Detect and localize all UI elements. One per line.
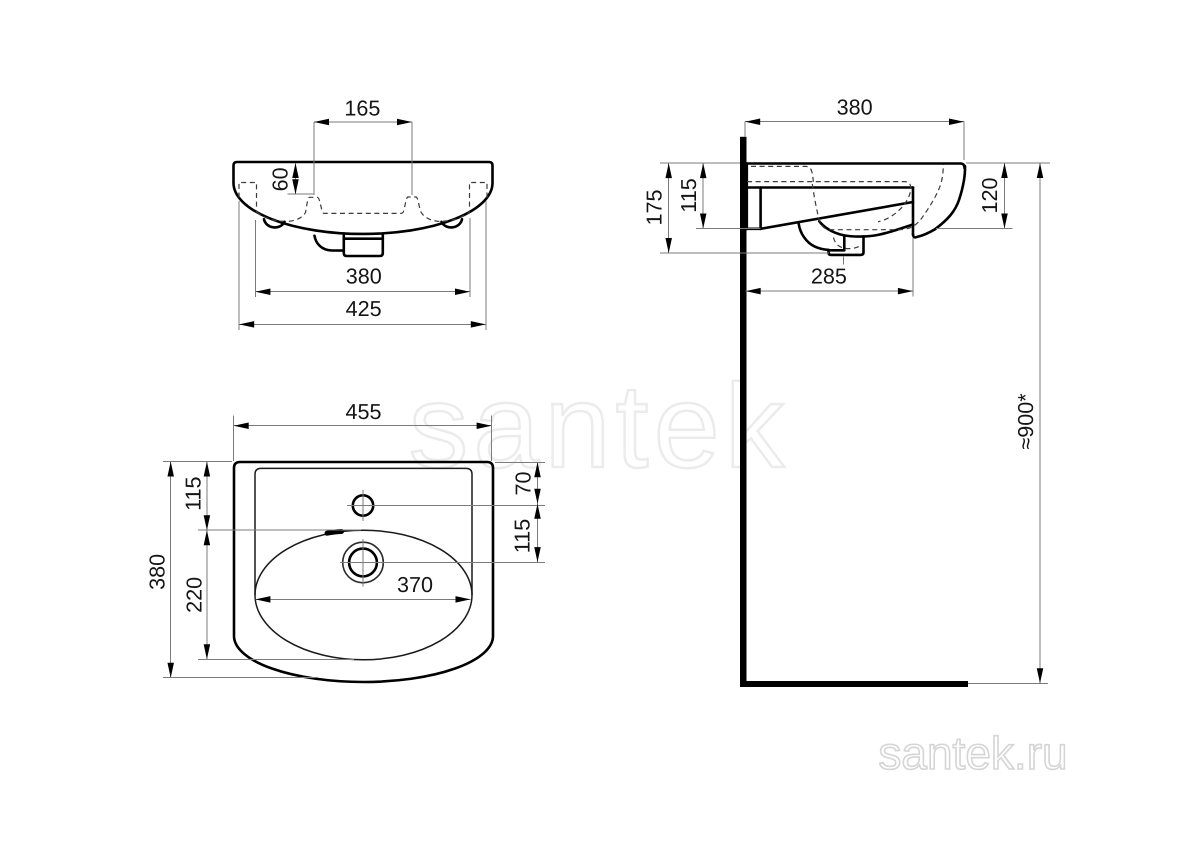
svg-text:380: 380 [145,554,170,590]
svg-text:115: 115 [181,476,206,510]
svg-text:380: 380 [837,95,873,120]
svg-text:60: 60 [268,167,293,191]
svg-text:175: 175 [642,189,667,225]
svg-text:380: 380 [346,264,382,289]
svg-text:santek.ru: santek.ru [878,727,1067,779]
svg-text:70: 70 [511,471,536,495]
svg-text:115: 115 [510,519,535,553]
svg-text:455: 455 [345,399,381,424]
svg-text:425: 425 [346,296,382,321]
svg-text:santek: santek [409,360,790,493]
svg-text:165: 165 [344,96,380,121]
svg-text:115: 115 [676,178,701,212]
svg-text:285: 285 [811,264,847,289]
svg-text:370: 370 [397,572,433,597]
svg-text:120: 120 [977,177,1002,213]
svg-text:220: 220 [182,577,207,613]
svg-text:≈900*: ≈900* [1013,393,1038,450]
